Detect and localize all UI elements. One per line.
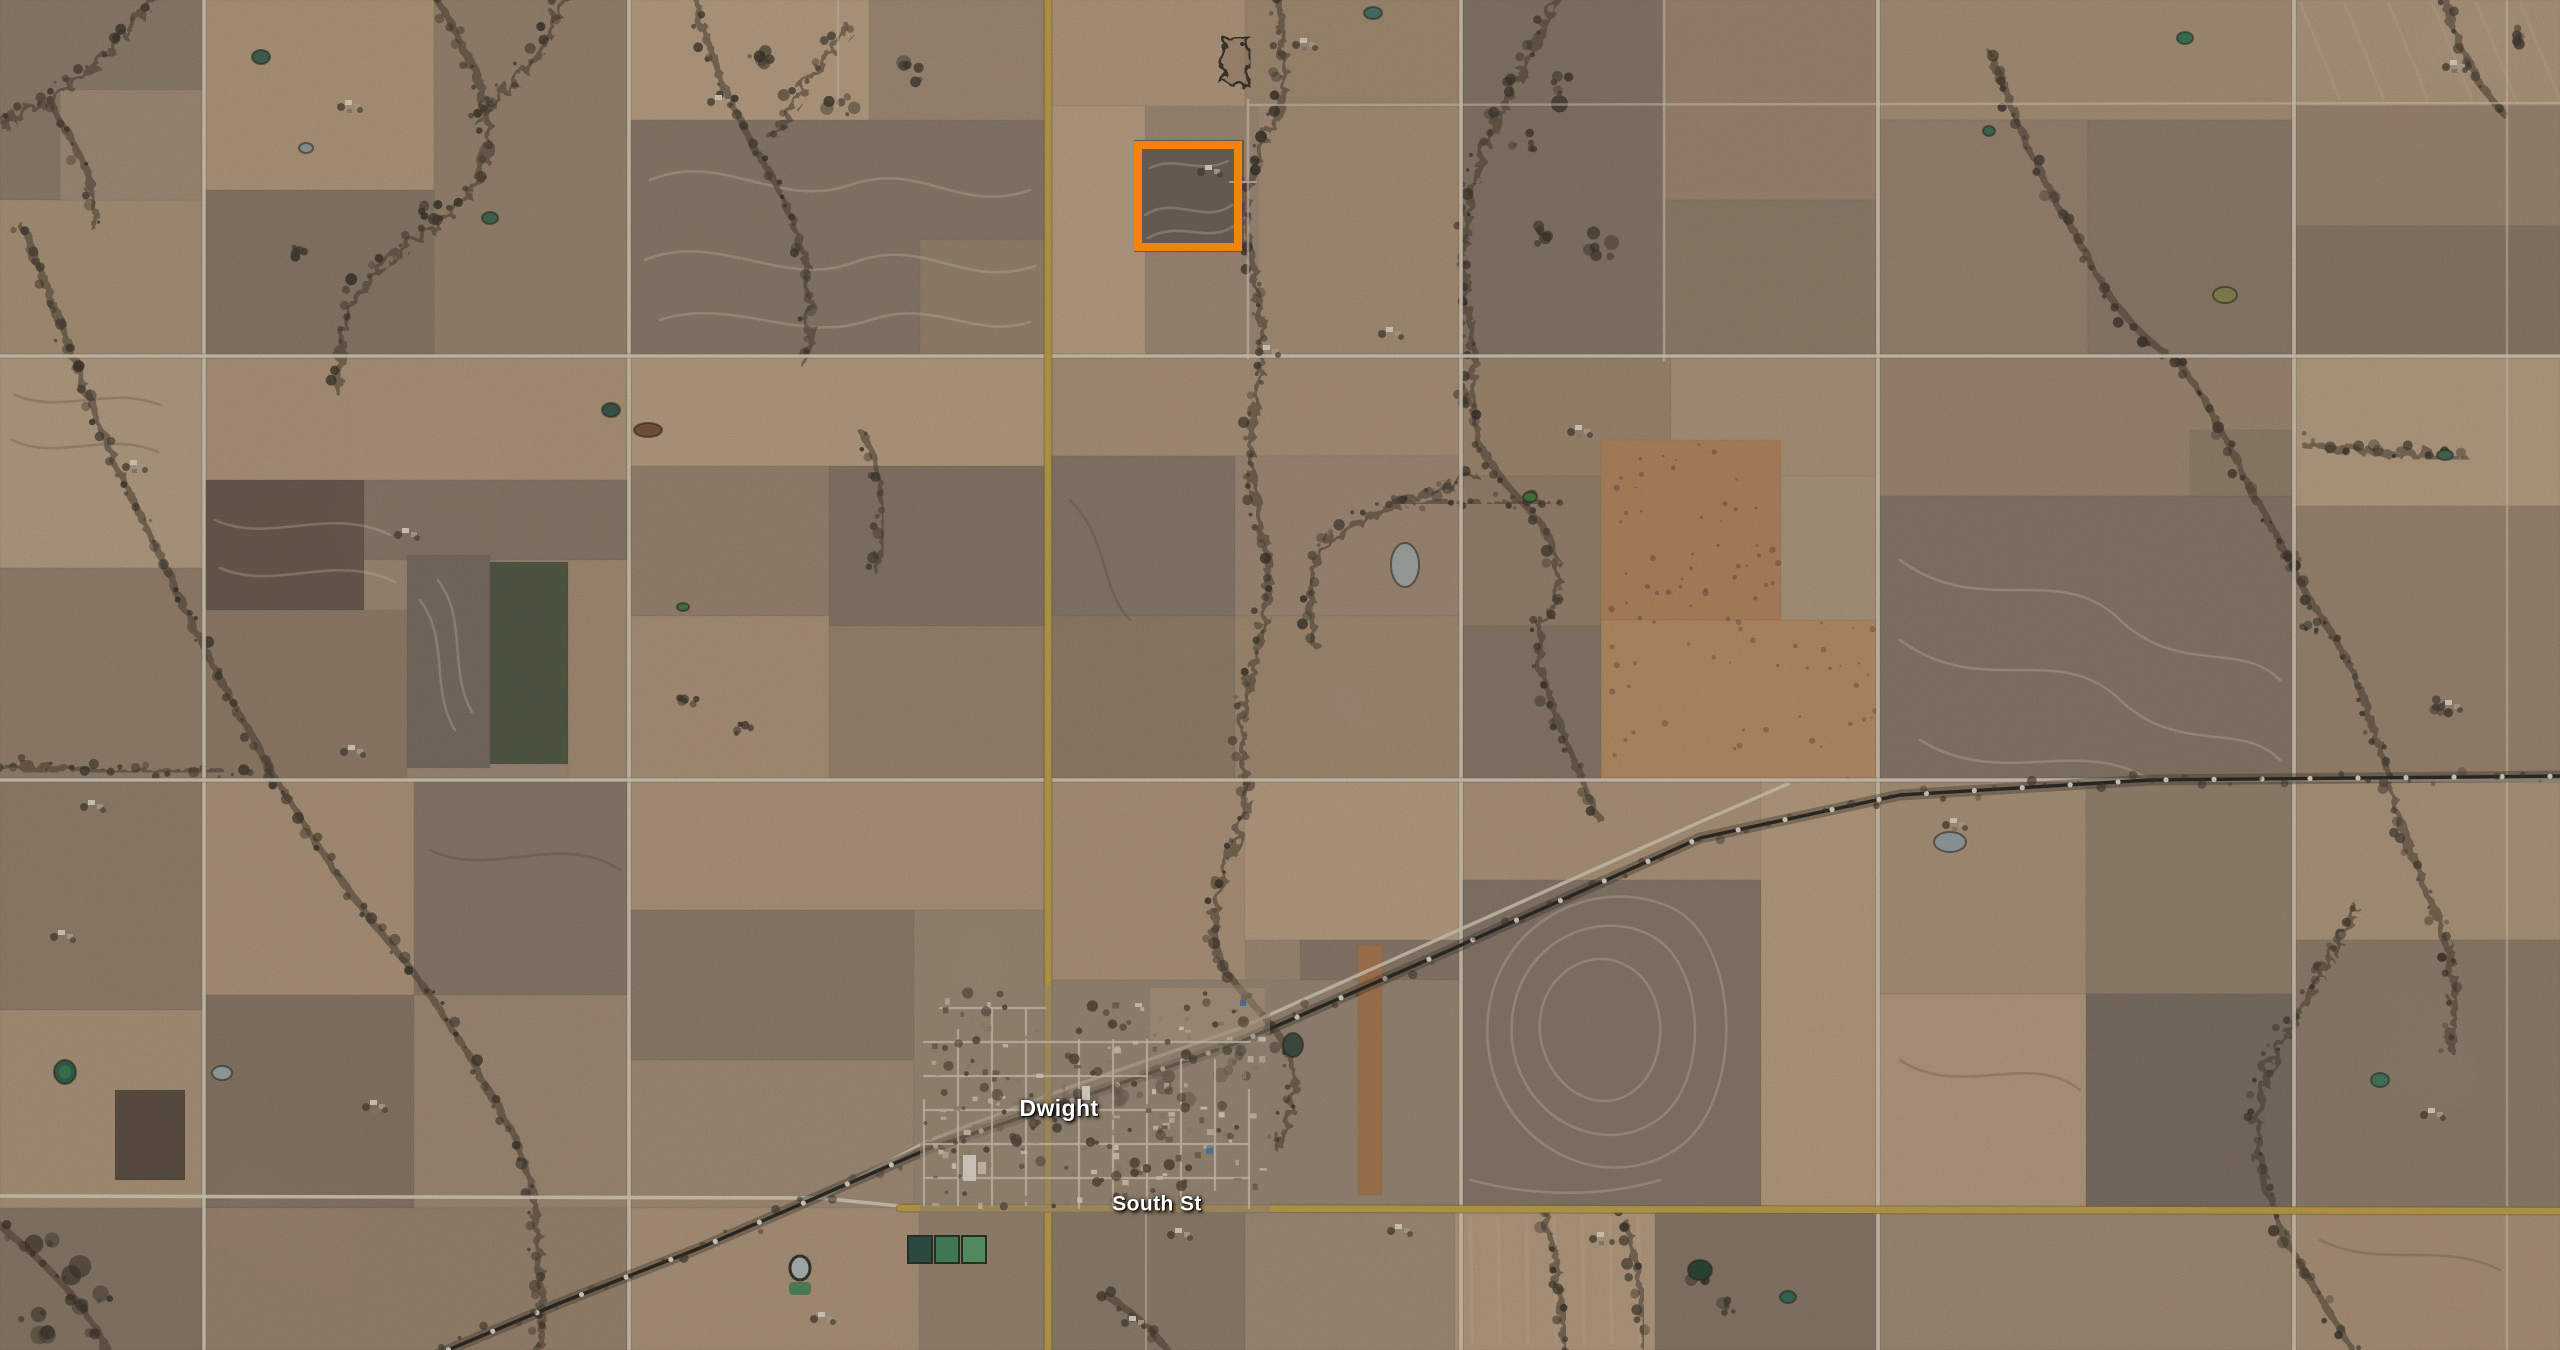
map-canvas[interactable]: Dwight South St	[0, 0, 2560, 1350]
satellite-imagery	[0, 0, 2560, 1350]
town-label[interactable]: Dwight	[1019, 1095, 1098, 1122]
mottle-overlay	[0, 0, 2560, 1350]
street-label: South St	[1112, 1193, 1202, 1217]
